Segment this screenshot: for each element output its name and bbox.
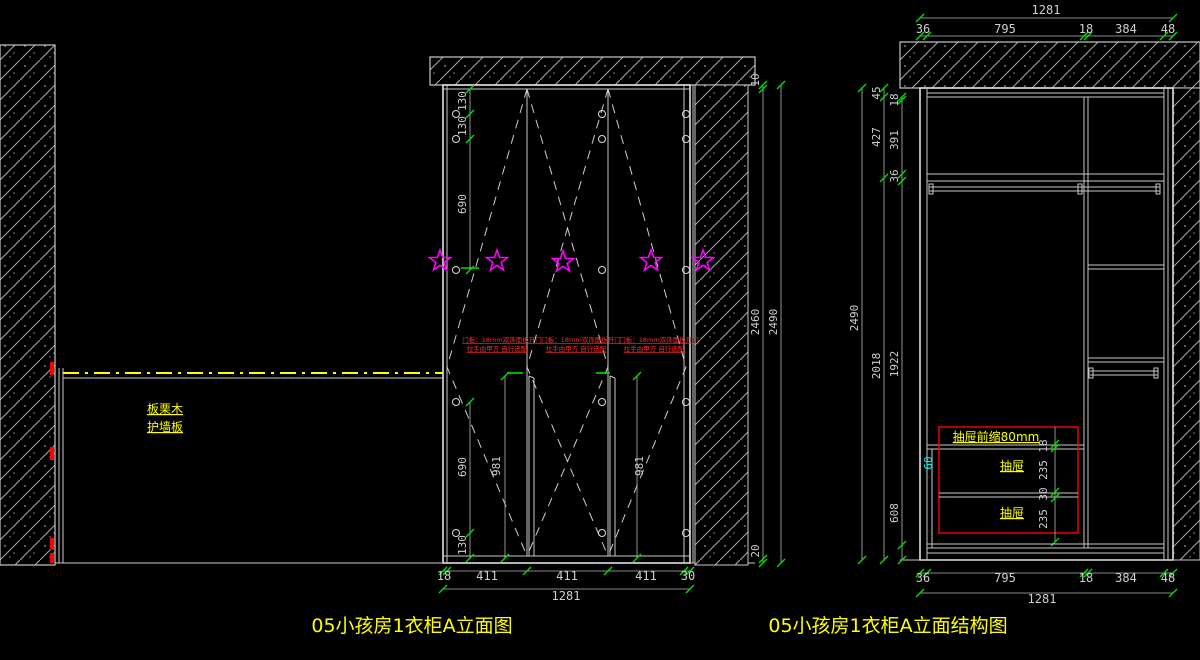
dim-2490-struct: 2490 [848, 305, 861, 332]
dim-130-b: 130 [456, 116, 469, 136]
dim-bot-795: 795 [994, 571, 1016, 585]
dim-top-384: 384 [1115, 22, 1137, 36]
structure-title: 05小孩房1衣柜A立面结构图 [768, 615, 1007, 637]
dim-bot-36: 36 [916, 571, 930, 585]
dim-130-a: 130 [456, 91, 469, 111]
wall-fixing-mark [50, 553, 54, 563]
drawer-label-2: 抽屉 [1000, 506, 1024, 520]
wall-fixing-mark [50, 447, 54, 460]
dim-45: 45 [870, 86, 883, 99]
left-wall-hatch [0, 45, 55, 565]
wall-panel-label-line1: 板栗木 [147, 402, 183, 416]
elevation-title: 05小孩房1衣柜A立面图 [311, 615, 512, 637]
cad-drawing-canvas: 板栗木 护墙板 [0, 0, 1200, 660]
cad-svg: 板栗木 护墙板 [0, 0, 1200, 660]
dim-2018: 2018 [870, 353, 883, 380]
dim-411-b: 411 [556, 569, 578, 583]
side-wall-hatch [1173, 88, 1200, 560]
dim-drawer-18: 18 [1037, 439, 1050, 452]
dim-36-left: 36 [888, 169, 901, 182]
ceiling-beam-hatch [430, 57, 755, 85]
dim-18: 18 [437, 569, 451, 583]
dim-top-1281: 1281 [1032, 3, 1061, 17]
door-note-3-line1: 门板：18mm双饰面板开门 [619, 335, 698, 344]
dim-top-36: 36 [916, 22, 930, 36]
dim-30: 30 [681, 569, 695, 583]
wall-panel-label-line2: 护墙板 [147, 420, 183, 434]
door-note-2-line1: 门板：18mm双饰面板开门 [541, 335, 620, 344]
background [0, 0, 1200, 660]
door-note-2-line2: 拉手由甲方 自行选配 [546, 344, 607, 353]
dim-411-c: 411 [635, 569, 657, 583]
dim-bot-18: 18 [1079, 571, 1093, 585]
dim-2460: 2460 [749, 309, 762, 336]
dim-1281-total: 1281 [552, 589, 581, 603]
dim-18-left: 18 [888, 93, 901, 106]
dim-drawer-235b: 235 [1037, 509, 1050, 529]
dim-drawer-235a: 235 [1037, 460, 1050, 480]
dim-391: 391 [888, 130, 901, 150]
door-note-3-line2: 拉手由甲方 自行选配 [624, 344, 685, 353]
door-note-1-line2: 拉手由甲方 自行选配 [467, 344, 528, 353]
door-note-1-line1: 门板：18mm双饰面板开门 [462, 335, 541, 344]
dim-20: 20 [749, 544, 762, 557]
dim-981-right: 981 [633, 456, 646, 476]
dim-427: 427 [870, 127, 883, 147]
dim-1922: 1922 [888, 351, 901, 378]
wall-fixing-mark [50, 362, 54, 375]
dim-drawer-30: 30 [1037, 487, 1050, 500]
wall-fixing-mark [50, 538, 54, 550]
dim-10: 10 [749, 73, 762, 86]
dim-981-left: 981 [490, 456, 503, 476]
dim-690-bottom: 690 [456, 457, 469, 477]
dim-bot-384: 384 [1115, 571, 1137, 585]
ceiling-beam-hatch-right [900, 42, 1200, 88]
dim-top-18: 18 [1079, 22, 1093, 36]
drawer-setback-note: 抽屉前缩80mm [953, 429, 1040, 444]
dim-411-a: 411 [476, 569, 498, 583]
dim-2490-elev: 2490 [767, 309, 780, 336]
dim-608: 608 [888, 503, 901, 523]
dim-top-795: 795 [994, 22, 1016, 36]
drawer-label-1: 抽屉 [1000, 459, 1024, 473]
dim-60-cyan: 60 [922, 456, 935, 469]
dim-130-bottom: 130 [456, 535, 469, 555]
dim-bot-1281: 1281 [1028, 592, 1057, 606]
dim-bot-48: 48 [1161, 571, 1175, 585]
dim-top-48: 48 [1161, 22, 1175, 36]
dim-690-top: 690 [456, 194, 469, 214]
right-wall-hatch [695, 85, 748, 565]
